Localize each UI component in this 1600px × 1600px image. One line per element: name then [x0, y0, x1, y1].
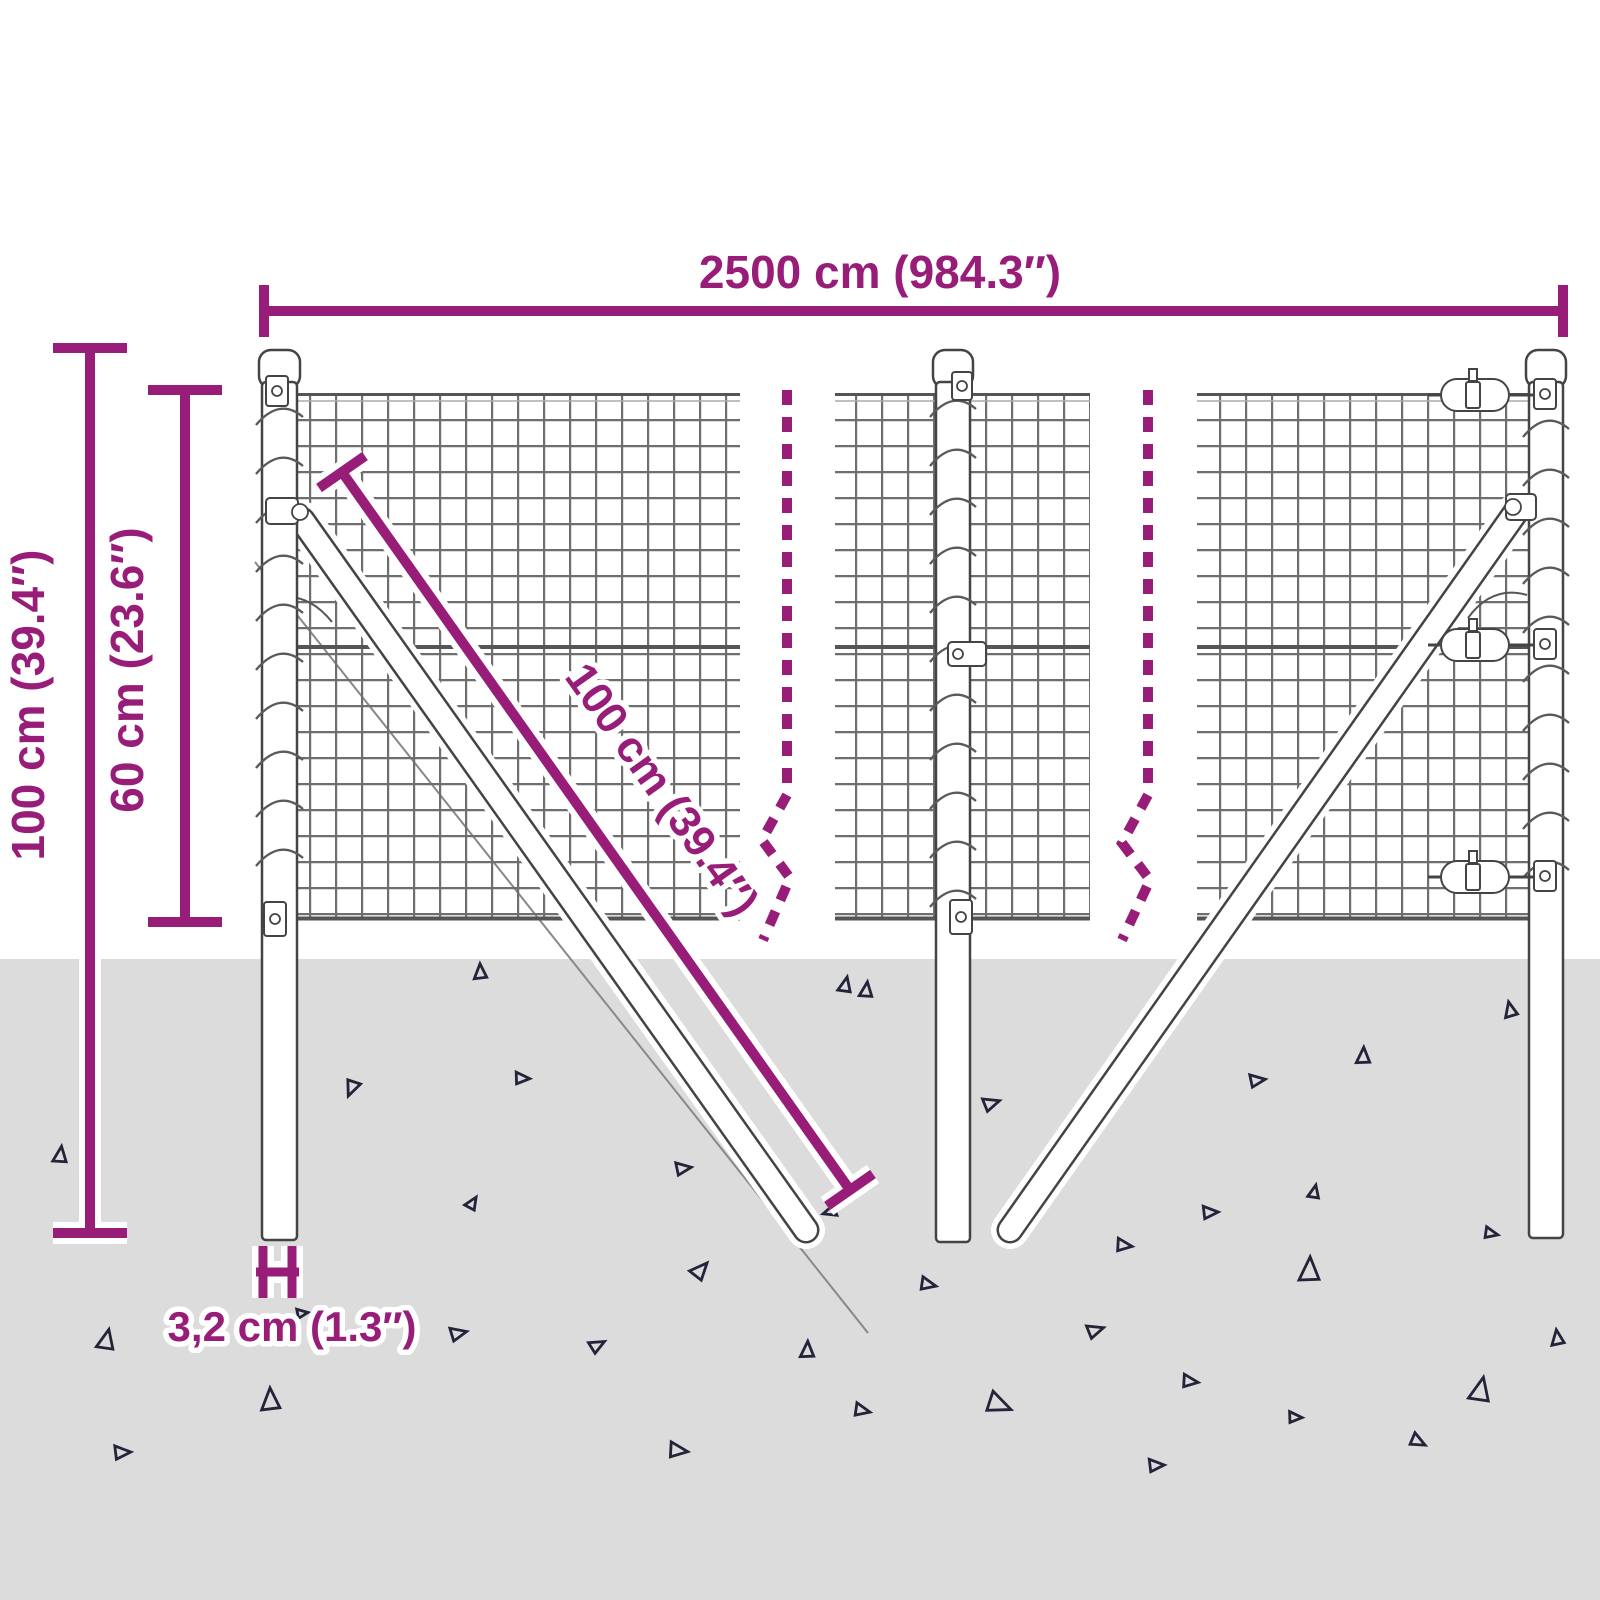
fence-dimension-diagram: 2500 cm (984.3″) 100 cm (39.4″) 60 cm (2…: [0, 0, 1600, 1600]
left-post: [259, 350, 300, 1240]
post-diameter-label: 3,2 cm (1.3″): [168, 1303, 417, 1350]
break-line-right: [1122, 390, 1150, 940]
screw-icon: [1540, 871, 1550, 881]
dimension-mesh-height: 60 cm (23.6″): [101, 390, 222, 922]
right-post: [1526, 350, 1566, 1238]
screw-icon: [1540, 639, 1550, 649]
screw-icon: [957, 381, 967, 391]
screw-icon: [270, 914, 280, 924]
screw-icon: [956, 912, 966, 922]
screw-icon: [953, 649, 963, 659]
mesh-height-label: 60 cm (23.6″): [101, 527, 153, 812]
pivot-bolt-icon: [292, 504, 308, 520]
screw-icon: [1540, 389, 1550, 399]
diagram-canvas: 2500 cm (984.3″) 100 cm (39.4″) 60 cm (2…: [0, 0, 1600, 1600]
post-body: [936, 382, 970, 1242]
break-line-left: [762, 390, 790, 940]
screw-icon: [272, 386, 282, 396]
total-width-label: 2500 cm (984.3″): [699, 246, 1061, 298]
post-height-label: 100 cm (39.4″): [2, 550, 54, 861]
dimension-total-width: 2500 cm (984.3″): [264, 246, 1563, 337]
pivot-bolt-icon: [1505, 499, 1521, 515]
